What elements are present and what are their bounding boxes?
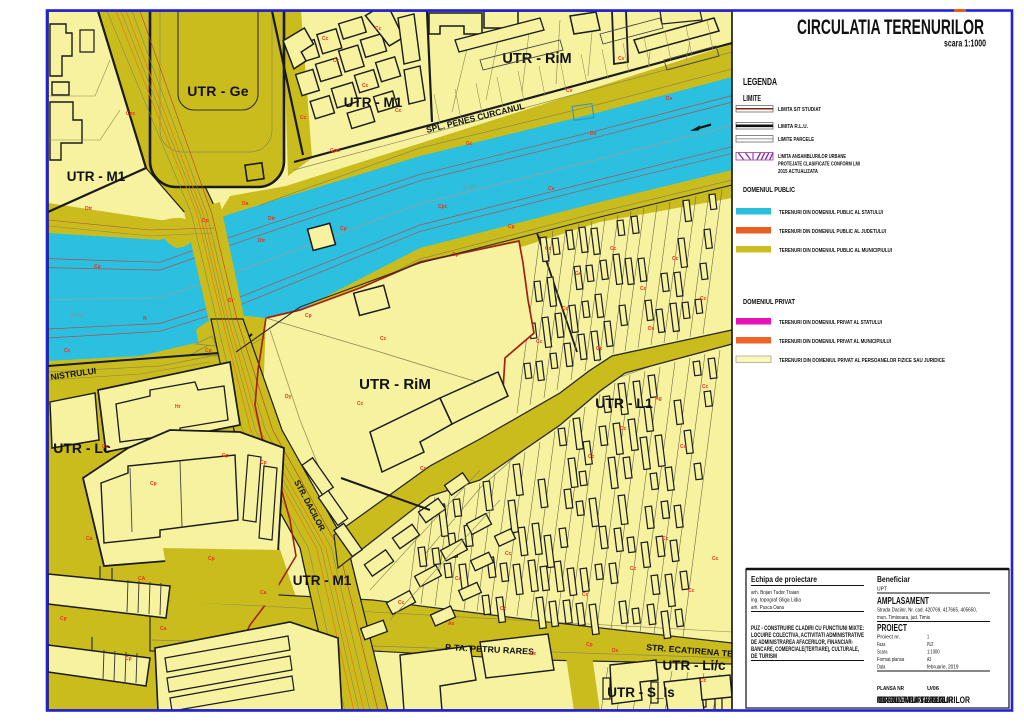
svg-text:Cc: Cc (500, 606, 507, 612)
svg-text:Cc: Cc (688, 588, 695, 594)
svg-text:Dtr: Dtr (85, 206, 92, 212)
svg-text:Cp: Cp (305, 313, 312, 319)
svg-text:Dv: Dv (590, 131, 597, 137)
svg-text:Ca: Ca (260, 590, 267, 596)
svg-text:Cc: Cc (375, 26, 382, 32)
svg-text:Cp: Cp (94, 264, 101, 270)
svg-text:LIMITA R.L.U.: LIMITA R.L.U. (778, 124, 808, 130)
svg-text:Cc: Cc (380, 336, 387, 342)
svg-text:Cp: Cp (205, 348, 212, 354)
svg-text:Cc: Cc (700, 678, 707, 684)
svg-text:UTR - RiM: UTR - RiM (502, 51, 571, 67)
svg-text:LIMITE PARCELE: LIMITE PARCELE (778, 137, 814, 143)
svg-text:Hr: Hr (175, 404, 181, 410)
svg-text:arh. Pusca Oana: arh. Pusca Oana (751, 605, 784, 611)
svg-text:As: As (448, 621, 455, 627)
svg-text:Cc: Cc (662, 536, 669, 542)
svg-text:Cc: Cc (630, 566, 637, 572)
svg-text:PUZ - CONSTRUIRE CLADIRI CU FU: PUZ - CONSTRUIRE CLADIRI CU FUNCTIUNI MI… (751, 626, 864, 632)
svg-text:Cc: Cc (610, 246, 617, 252)
svg-text:Ds: Ds (612, 648, 619, 654)
svg-text:Cc: Cc (620, 426, 627, 432)
svg-text:BANCARE, COMERCIALE(TERTIARE),: BANCARE, COMERCIALE(TERTIARE), CULTURALE… (751, 647, 859, 653)
svg-text:Bega: Bega (70, 312, 84, 319)
svg-text:TERENURI DIN DOMENIUL PRIVAT A: TERENURI DIN DOMENIUL PRIVAT AL STATULUI (779, 320, 882, 326)
svg-text:ing. topograf Gliga Lidia: ing. topograf Gliga Lidia (751, 598, 801, 604)
svg-text:PROTEJATE CLASIFICATE CONFORM: PROTEJATE CLASIFICATE CONFORM LMI (778, 162, 860, 168)
svg-text:Cpc: Cpc (126, 111, 136, 117)
svg-text:UPT: UPT (877, 587, 888, 593)
svg-text:Cc: Cc (702, 384, 709, 390)
svg-text:Ds: Ds (648, 326, 655, 332)
svg-text:Cp: Cp (260, 460, 267, 466)
svg-text:TERENURI DIN DOMENIUL PUBLIC A: TERENURI DIN DOMENIUL PUBLIC AL MUNICIPI… (779, 248, 892, 254)
svg-text:Gc: Gc (575, 271, 582, 277)
svg-text:Cc: Cc (596, 346, 603, 352)
svg-text:PLANSA NR: PLANSA NR (877, 686, 904, 692)
svg-text:Cp: Cp (208, 556, 215, 562)
svg-text:Dp: Dp (202, 218, 209, 224)
svg-text:DE TURISM: DE TURISM (751, 654, 777, 660)
svg-text:Cp: Cp (125, 656, 132, 662)
svg-text:Cc: Cc (672, 256, 679, 262)
svg-text:UTR - Li/c: UTR - Li/c (663, 658, 726, 673)
svg-text:Dv: Dv (666, 96, 673, 102)
svg-text:Ca: Ca (86, 536, 93, 542)
svg-text:Cp: Cp (60, 616, 67, 622)
svg-text:Cp: Cp (586, 642, 593, 648)
svg-text:Cc: Cc (300, 115, 307, 121)
svg-text:UTR - RiM: UTR - RiM (359, 376, 431, 393)
svg-text:LOCUIRE COLECTIVA, ACTIVITATI: LOCUIRE COLECTIVA, ACTIVITATI ADMINISTRA… (751, 633, 864, 639)
svg-text:Format plansa: Format plansa (877, 657, 904, 663)
svg-text:1:1000: 1:1000 (927, 650, 940, 656)
svg-text:Cp: Cp (340, 226, 347, 232)
svg-text:Cc: Cc (455, 576, 462, 582)
svg-text:UTR - M1: UTR - M1 (67, 169, 126, 184)
svg-text:Cc: Cc (102, 444, 109, 450)
svg-text:Dr: Dr (228, 298, 234, 304)
svg-text:Cc: Cc (545, 246, 552, 252)
svg-text:Cc: Cc (582, 592, 589, 598)
svg-text:PROIECT: PROIECT (877, 623, 907, 634)
svg-text:Faza: Faza (877, 642, 885, 648)
svg-text:PROPRIETATEA ASUPRA TERENURILO: PROPRIETATEA ASUPRA TERENURILOR (877, 695, 952, 706)
svg-text:Cc: Cc (712, 556, 719, 562)
svg-text:Echipa de proiectare: Echipa de proiectare (751, 574, 817, 584)
svg-text:TERENURI DIN DOMENIUL PRIVAT A: TERENURI DIN DOMENIUL PRIVAT AL PERSOANE… (779, 358, 945, 364)
svg-text:TERENURI DIN DOMENIUL PUBLIC A: TERENURI DIN DOMENIUL PUBLIC AL JUDETULU… (779, 229, 886, 235)
svg-text:LIMITA ANSAMBLURILOR URBANE: LIMITA ANSAMBLURILOR URBANE (778, 154, 846, 160)
svg-text:Scara: Scara (877, 650, 888, 656)
svg-text:Dtr: Dtr (258, 238, 265, 244)
svg-text:Cc: Cc (357, 401, 364, 407)
svg-text:Cv: Cv (548, 186, 555, 192)
svg-text:CA: CA (138, 576, 146, 582)
svg-text:Cc: Cc (398, 600, 405, 606)
svg-text:Gc: Gc (466, 141, 473, 147)
svg-text:UTR - M1: UTR - M1 (293, 573, 352, 588)
svg-text:mun. Timisoara, jud. Timis: mun. Timisoara, jud. Timis (877, 615, 930, 621)
svg-text:Cc: Cc (562, 306, 569, 312)
svg-text:A3: A3 (927, 657, 931, 663)
svg-text:CIRCULATIA TERENURILOR: CIRCULATIA TERENURILOR (797, 15, 984, 39)
svg-text:UTR - S_Is: UTR - S_Is (607, 685, 675, 700)
svg-text:Cp: Cp (222, 453, 229, 459)
svg-text:Da: Da (242, 201, 249, 207)
svg-text:Cp: Cp (150, 481, 157, 487)
svg-text:Cc: Cc (588, 454, 595, 460)
svg-text:Cc: Cc (64, 348, 71, 354)
svg-text:Cc: Cc (333, 58, 340, 64)
svg-text:Cv: Cv (566, 88, 573, 94)
svg-text:LIMITE: LIMITE (743, 94, 761, 103)
svg-text:2015 ACTUALIZATA: 2015 ACTUALIZATA (778, 169, 818, 175)
svg-text:AMPLASAMENT: AMPLASAMENT (877, 596, 929, 607)
svg-text:Ag: Ag (655, 396, 662, 402)
svg-text:Cv: Cv (618, 56, 625, 62)
svg-text:arh. Bojan Tudor Traian: arh. Bojan Tudor Traian (751, 590, 799, 596)
svg-text:Cc: Cc (680, 444, 687, 450)
svg-text:UTR - M1: UTR - M1 (344, 95, 403, 110)
svg-text:Strada Dacilor, Nr. cad. 42076: Strada Dacilor, Nr. cad. 420769, 417665,… (877, 608, 977, 614)
svg-text:LEGENDA: LEGENDA (743, 76, 777, 88)
svg-text:U/06: U/06 (927, 686, 939, 692)
svg-text:DE ADMINISTRAREA AFACERILOR, F: DE ADMINISTRAREA AFACERILOR, FINANCIAR- (751, 640, 853, 646)
svg-text:Cc: Cc (322, 36, 329, 42)
svg-text:DOMENIUL PUBLIC: DOMENIUL PUBLIC (743, 185, 795, 194)
svg-text:scara 1:1000: scara 1:1000 (944, 38, 986, 50)
svg-text:Cpc: Cpc (438, 204, 448, 210)
svg-text:Dy: Dy (285, 394, 292, 400)
svg-text:Cc: Cc (640, 286, 647, 292)
svg-text:Cc: Cc (420, 466, 427, 472)
svg-text:Ca: Ca (160, 626, 167, 632)
svg-text:Dtr: Dtr (268, 216, 275, 222)
svg-text:Cc: Cc (505, 551, 512, 557)
svg-text:Cp: Cp (508, 224, 515, 230)
svg-text:Cpd: Cpd (330, 148, 340, 154)
svg-text:februarie, 2019: februarie, 2019 (927, 665, 959, 671)
svg-text:Cc: Cc (362, 83, 369, 89)
svg-text:1: 1 (927, 635, 929, 641)
svg-text:PUZ: PUZ (927, 642, 934, 648)
svg-text:Proiect nr.: Proiect nr. (877, 635, 900, 641)
svg-text:Beneficiar: Beneficiar (877, 574, 911, 584)
svg-text:TERENURI DIN DOMENIUL PUBLIC A: TERENURI DIN DOMENIUL PUBLIC AL STATULUI (779, 210, 883, 216)
svg-text:Cc: Cc (536, 339, 543, 345)
svg-text:Data: Data (877, 665, 885, 671)
svg-text:Cc: Cc (700, 296, 707, 302)
svg-text:UTR - L1: UTR - L1 (595, 395, 653, 411)
svg-text:Cc: Cc (395, 108, 402, 114)
svg-text:DOMENIUL PRIVAT: DOMENIUL PRIVAT (743, 297, 795, 306)
svg-text:TERENURI DIN DOMENIUL PRIVAT A: TERENURI DIN DOMENIUL PRIVAT AL MUNICIPI… (779, 339, 891, 345)
svg-text:UTR - Ge: UTR - Ge (187, 83, 249, 99)
svg-text:Cc: Cc (530, 651, 537, 657)
svg-text:N: N (143, 316, 147, 322)
svg-text:LIMITA SIT STUDIAT: LIMITA SIT STUDIAT (778, 107, 822, 113)
